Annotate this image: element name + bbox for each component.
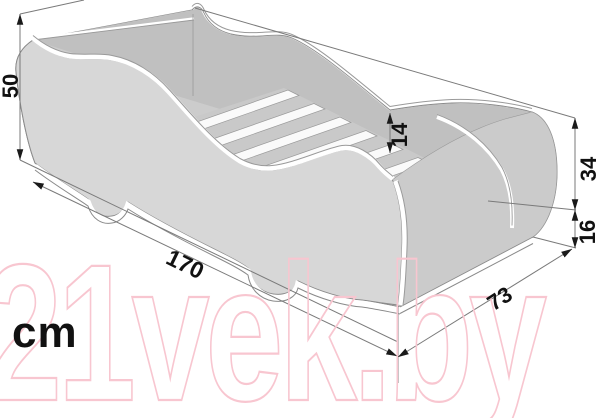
dimension-label-total-height: 50 (0, 61, 22, 111)
bed-frame-shapes (16, 3, 557, 314)
ext-line-top-left (20, 0, 84, 14)
bed-technical-drawing (0, 0, 600, 418)
dimension-label-footboard: 34 (578, 147, 600, 191)
dimension-label-base: 16 (577, 210, 599, 254)
ext-line-base (533, 237, 576, 248)
bed-dimension-diagram: 21vek.by (0, 0, 600, 418)
dimension-label-rail-depth: 14 (389, 113, 411, 157)
unit-label: cm (12, 308, 78, 358)
